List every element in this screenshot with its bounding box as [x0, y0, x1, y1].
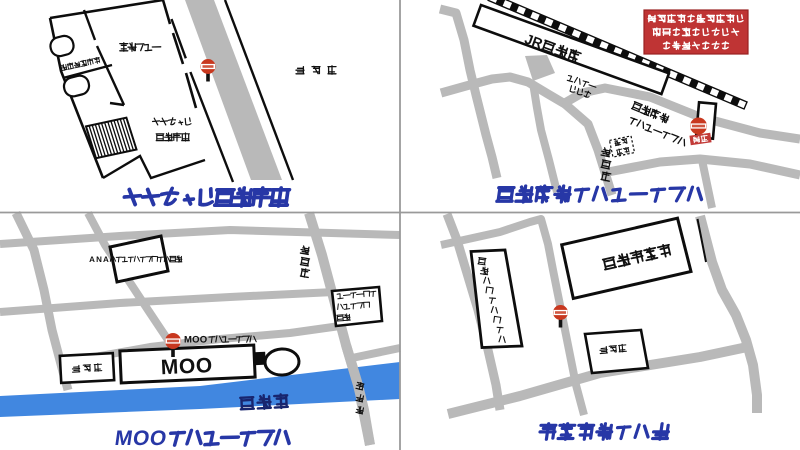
svg-text:MOO: MOO — [184, 334, 207, 345]
svg-text:MOO: MOO — [113, 427, 168, 450]
svg-text:ANA: ANA — [89, 255, 109, 264]
svg-text:MOO: MOO — [160, 354, 212, 379]
